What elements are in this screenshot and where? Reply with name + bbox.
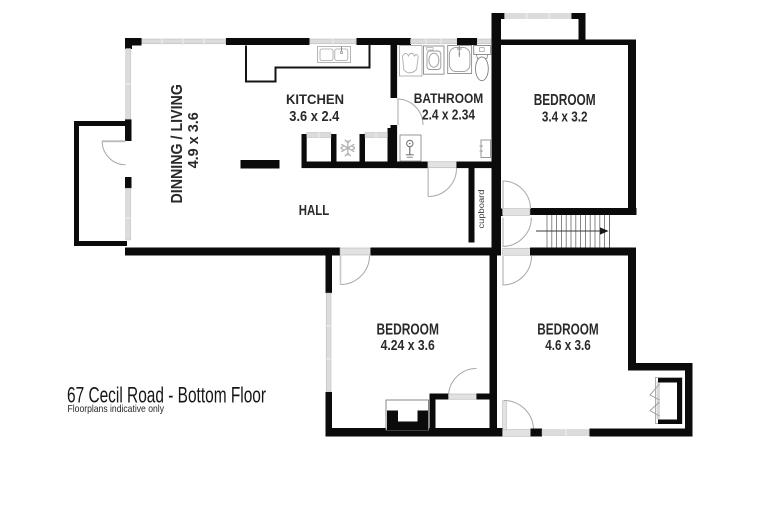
svg-text:HALL: HALL xyxy=(299,203,330,219)
svg-text:BATHROOM: BATHROOM xyxy=(414,91,484,106)
svg-text:cupboard: cupboard xyxy=(476,189,486,228)
svg-text:BEDROOM: BEDROOM xyxy=(537,321,599,338)
svg-text:4.6 x 3.6: 4.6 x 3.6 xyxy=(545,337,591,354)
svg-text:Floorplans indicative only: Floorplans indicative only xyxy=(68,403,165,415)
svg-text:3.4 x 3.2: 3.4 x 3.2 xyxy=(542,109,588,126)
svg-text:DINNING / LIVING: DINNING / LIVING xyxy=(169,84,186,203)
svg-text:2.4 x 2.34: 2.4 x 2.34 xyxy=(422,108,475,124)
svg-text:BEDROOM: BEDROOM xyxy=(376,321,439,338)
svg-text:BEDROOM: BEDROOM xyxy=(534,92,596,109)
svg-text:KITCHEN: KITCHEN xyxy=(286,92,344,107)
svg-text:4.9 x 3.6: 4.9 x 3.6 xyxy=(185,112,202,168)
svg-text:3.6 x 2.4: 3.6 x 2.4 xyxy=(289,109,339,125)
svg-text:4.24 x 3.6: 4.24 x 3.6 xyxy=(381,337,435,354)
